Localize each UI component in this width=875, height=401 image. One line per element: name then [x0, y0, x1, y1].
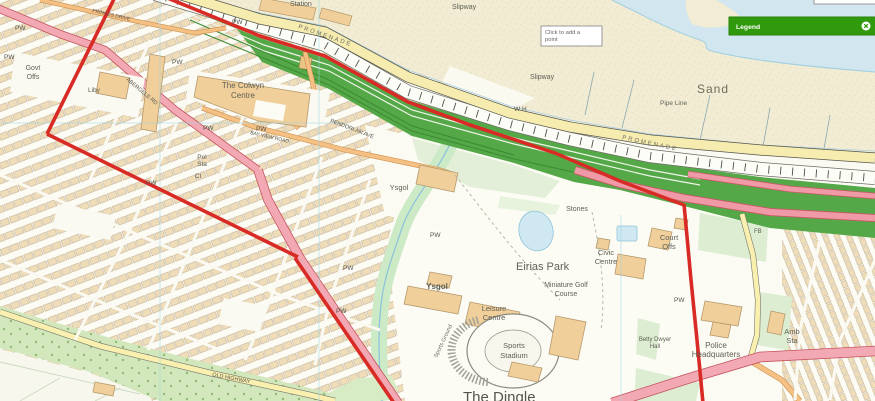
svg-text:Pol: Pol [197, 154, 207, 161]
svg-text:Sta: Sta [786, 336, 798, 345]
svg-text:Legend: Legend [736, 24, 760, 31]
svg-text:PW: PW [172, 59, 183, 66]
svg-text:Station: Station [290, 1, 312, 8]
svg-text:Eirias Park: Eirias Park [516, 261, 570, 273]
svg-text:Liby: Liby [88, 87, 101, 94]
svg-text:Sta: Sta [197, 161, 207, 168]
svg-text:Slipway: Slipway [452, 4, 477, 11]
svg-text:Course: Course [555, 291, 578, 298]
svg-text:Stones: Stones [566, 206, 588, 213]
svg-text:Civic: Civic [598, 248, 614, 257]
svg-text:Offs: Offs [27, 74, 40, 81]
svg-text:PW: PW [674, 297, 685, 304]
svg-text:Sports: Sports [503, 341, 525, 350]
svg-text:PW: PW [15, 25, 26, 32]
svg-text:Pipe Line: Pipe Line [660, 100, 687, 107]
svg-text:Ysgol: Ysgol [426, 282, 448, 291]
svg-text:The Dingle: The Dingle [463, 389, 536, 401]
svg-text:Centre: Centre [595, 257, 618, 266]
svg-text:Centre: Centre [231, 91, 256, 100]
svg-text:Sand: Sand [697, 82, 729, 96]
svg-text:PW: PW [430, 232, 441, 239]
svg-text:point: point [545, 37, 558, 43]
svg-text:Court: Court [660, 233, 679, 242]
svg-text:Ysgol: Ysgol [390, 183, 409, 192]
svg-text:Miniature Golf: Miniature Golf [544, 282, 588, 289]
svg-text:PW: PW [4, 54, 15, 61]
svg-text:W H: W H [514, 106, 527, 113]
svg-text:FB: FB [754, 229, 762, 235]
svg-text:Hall: Hall [650, 344, 660, 350]
svg-text:Govt: Govt [26, 65, 41, 72]
svg-text:Headquarters: Headquarters [692, 350, 740, 359]
svg-text:Offs: Offs [662, 242, 676, 251]
svg-text:Centre: Centre [483, 313, 506, 322]
svg-text:Leisure: Leisure [482, 304, 507, 313]
svg-text:Slipway: Slipway [530, 74, 555, 81]
svg-text:PW: PW [343, 265, 354, 272]
svg-text:Betty Dwyer: Betty Dwyer [639, 337, 671, 343]
svg-text:Amb: Amb [784, 327, 799, 336]
svg-text:Police: Police [705, 341, 727, 350]
svg-text:PW: PW [232, 19, 243, 26]
svg-text:PW: PW [336, 308, 347, 315]
svg-text:Stadium: Stadium [500, 351, 528, 360]
svg-text:Ct: Ct [195, 173, 202, 180]
svg-text:The Colwyn: The Colwyn [222, 81, 264, 90]
svg-text:PW: PW [203, 125, 214, 132]
svg-text:Click to add a: Click to add a [545, 30, 581, 36]
svg-text:PW: PW [146, 180, 157, 187]
